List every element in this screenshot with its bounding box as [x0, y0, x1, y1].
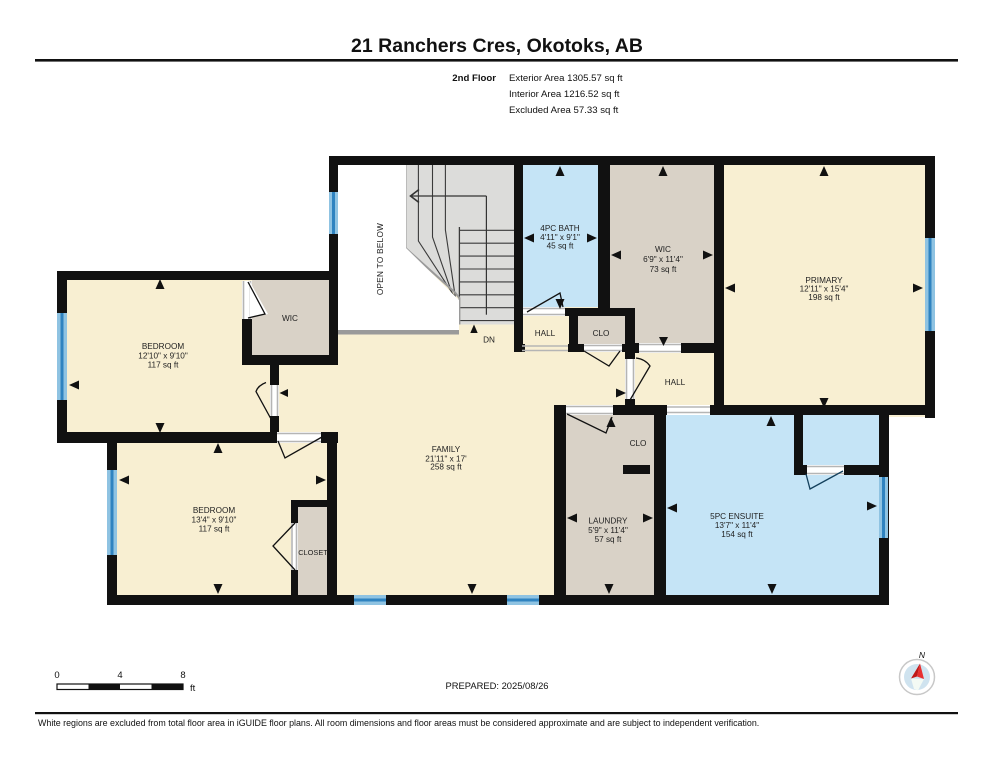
svg-text:154 sq ft: 154 sq ft	[721, 530, 753, 539]
svg-text:4PC BATH: 4PC BATH	[540, 224, 580, 233]
svg-text:BEDROOM: BEDROOM	[142, 342, 184, 351]
svg-text:CLOSET: CLOSET	[298, 548, 328, 557]
svg-text:CLO: CLO	[630, 439, 647, 448]
svg-text:CLO: CLO	[593, 329, 610, 338]
svg-text:198 sq ft: 198 sq ft	[808, 293, 840, 302]
svg-text:N: N	[919, 650, 926, 660]
svg-text:13'7" x 11'4": 13'7" x 11'4"	[715, 521, 759, 530]
svg-text:73 sq ft: 73 sq ft	[650, 265, 678, 274]
svg-text:ft: ft	[190, 683, 196, 694]
svg-text:Interior Area 1216.52 sq ft: Interior Area 1216.52 sq ft	[509, 89, 620, 100]
svg-text:117 sq ft: 117 sq ft	[148, 361, 180, 370]
svg-text:PREPARED: 2025/08/26: PREPARED: 2025/08/26	[445, 680, 548, 691]
svg-text:Excluded Area 57.33 sq ft: Excluded Area 57.33 sq ft	[509, 105, 619, 116]
svg-text:HALL: HALL	[535, 329, 556, 338]
svg-text:0: 0	[54, 670, 59, 681]
svg-text:57 sq ft: 57 sq ft	[595, 535, 623, 544]
svg-text:4: 4	[117, 670, 122, 681]
svg-text:12'10" x 9'10": 12'10" x 9'10"	[138, 352, 188, 361]
svg-text:258 sq ft: 258 sq ft	[430, 463, 462, 472]
svg-text:Exterior Area 1305.57 sq ft: Exterior Area 1305.57 sq ft	[509, 73, 623, 84]
svg-text:5PC ENSUITE: 5PC ENSUITE	[710, 512, 764, 521]
svg-text:WIC: WIC	[282, 314, 298, 323]
svg-text:8: 8	[180, 670, 185, 681]
svg-text:117 sq ft: 117 sq ft	[199, 525, 231, 534]
svg-text:2nd Floor: 2nd Floor	[452, 73, 496, 84]
svg-text:21 Ranchers Cres, Okotoks, AB: 21 Ranchers Cres, Okotoks, AB	[351, 35, 643, 57]
svg-text:DN: DN	[483, 336, 495, 345]
svg-text:6'9" x 11'4": 6'9" x 11'4"	[643, 255, 683, 264]
svg-text:OPEN TO BELOW: OPEN TO BELOW	[376, 223, 385, 295]
svg-text:13'4" x 9'10": 13'4" x 9'10"	[192, 516, 237, 525]
svg-text:HALL: HALL	[665, 378, 686, 387]
svg-text:WIC: WIC	[655, 245, 671, 254]
svg-text:BEDROOM: BEDROOM	[193, 506, 235, 515]
svg-text:LAUNDRY: LAUNDRY	[589, 517, 629, 526]
svg-text:FAMILY: FAMILY	[432, 445, 461, 454]
svg-text:White regions are excluded fro: White regions are excluded from total fl…	[38, 718, 759, 728]
svg-text:45 sq ft: 45 sq ft	[547, 242, 575, 251]
svg-text:5'9" x 11'4": 5'9" x 11'4"	[588, 526, 628, 535]
